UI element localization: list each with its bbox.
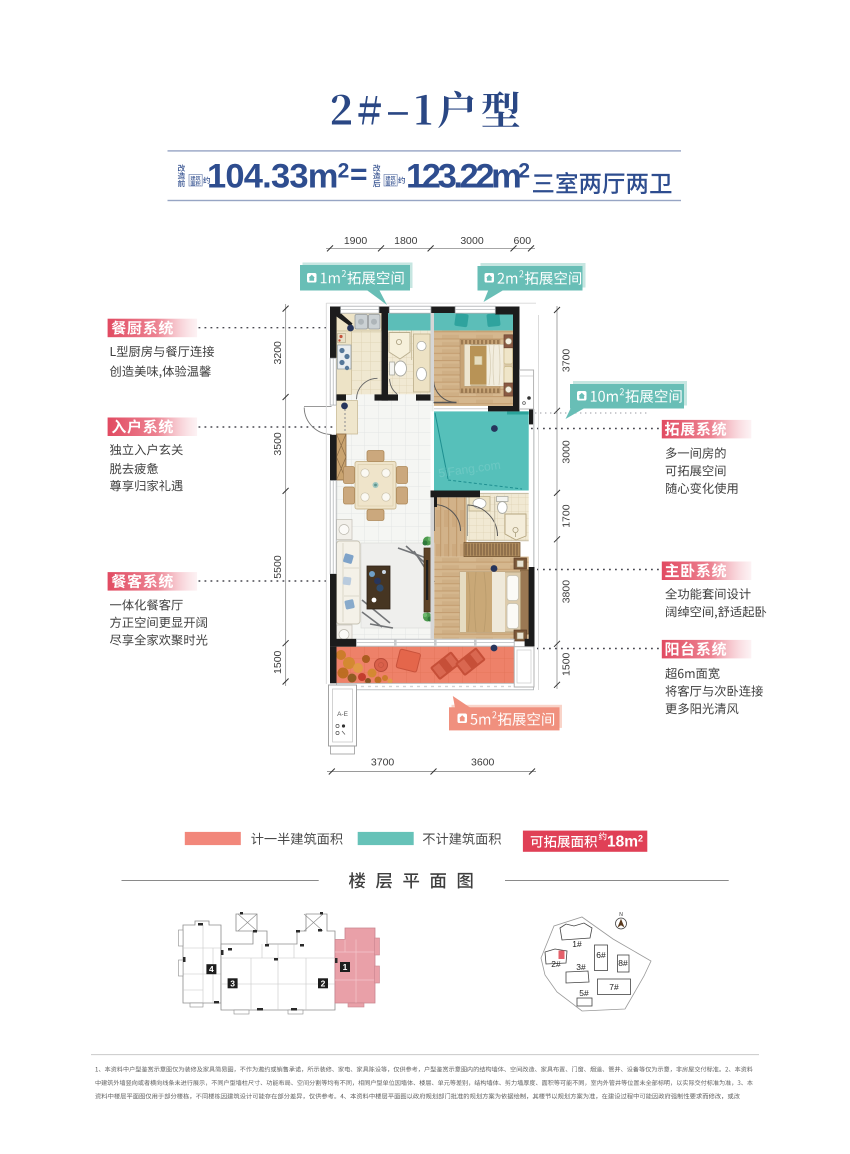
- svg-text:1500: 1500: [561, 652, 573, 676]
- svg-text:123.22m2: 123.22m2: [406, 157, 529, 195]
- svg-text:3500: 3500: [272, 432, 284, 456]
- svg-text:3: 3: [230, 978, 235, 988]
- svg-text:1: 1: [343, 962, 348, 972]
- svg-text:4: 4: [209, 964, 214, 974]
- svg-text:3700: 3700: [561, 349, 573, 373]
- svg-text:104.33m2: 104.33m2: [207, 157, 349, 195]
- svg-text:3800: 3800: [561, 580, 573, 604]
- svg-text:600: 600: [514, 235, 532, 247]
- svg-text:=: =: [350, 158, 368, 191]
- svg-text:1800: 1800: [394, 235, 418, 247]
- svg-text:5#: 5#: [579, 988, 589, 998]
- svg-text:18m2: 18m2: [607, 834, 643, 851]
- svg-text:8#: 8#: [618, 958, 628, 968]
- svg-text:5500: 5500: [272, 555, 284, 579]
- svg-text:3600: 3600: [471, 757, 495, 769]
- svg-text:A-E: A-E: [337, 711, 349, 718]
- svg-text:3000: 3000: [460, 235, 484, 247]
- svg-text:6#: 6#: [596, 950, 606, 960]
- svg-text:1#: 1#: [572, 939, 582, 949]
- svg-text:2#: 2#: [551, 959, 561, 969]
- svg-text:7#: 7#: [609, 982, 619, 992]
- svg-text:3#: 3#: [576, 962, 586, 972]
- svg-text:1900: 1900: [344, 235, 368, 247]
- svg-text:2: 2: [321, 978, 326, 988]
- svg-text:3700: 3700: [371, 757, 395, 769]
- svg-text:1500: 1500: [272, 650, 284, 674]
- svg-text:N: N: [619, 912, 623, 918]
- svg-text:1700: 1700: [561, 504, 573, 528]
- svg-text:3200: 3200: [272, 341, 284, 365]
- svg-text:3000: 3000: [561, 440, 573, 464]
